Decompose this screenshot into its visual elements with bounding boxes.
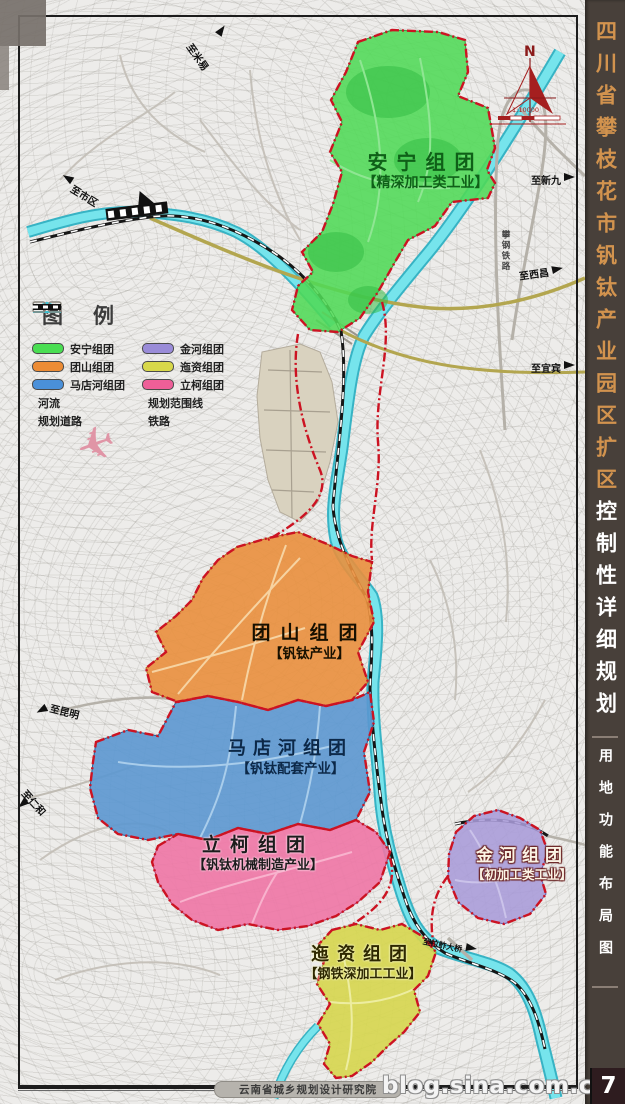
zone-label-jinhe: 金河组团 【初加工类工业】	[452, 846, 592, 883]
strip-divider	[592, 986, 618, 988]
zone-label-like: 立柯组团 【钒钛机械制造产业】	[168, 834, 348, 874]
scale-text: 1:10000	[512, 106, 539, 114]
yizi-swatch-icon	[142, 361, 174, 372]
zone-name: 马店河组团	[198, 738, 383, 761]
zone-name: 安宁组团	[338, 150, 513, 175]
arrow-lazha-bridge-icon	[465, 943, 477, 953]
anning-swatch-icon	[32, 343, 64, 354]
corner-square	[0, 0, 46, 46]
label-to-yibin: 至宜宾	[531, 360, 561, 375]
like-swatch-icon	[142, 379, 174, 390]
legend: 图例 安宁组团 团山组团 马店河组团	[32, 300, 250, 427]
watermark-blog-url: blog.sina.com.cn/xiagrui	[382, 1073, 625, 1099]
corner-tab	[0, 46, 9, 90]
jinhe-swatch-icon	[142, 343, 174, 354]
scale-bar-icon	[492, 116, 566, 124]
zone-name: 立柯组团	[168, 834, 348, 858]
institute-name: 云南省城乡规划设计研究院	[239, 1082, 377, 1097]
legend-item-anning: 安宁组团	[32, 342, 134, 355]
madianhe-swatch-icon	[32, 379, 64, 390]
legend-item-like: 立柯组团	[142, 378, 224, 391]
arrow-to-yibin-icon	[564, 361, 575, 369]
label-to-xinjiu: 至新九	[531, 172, 561, 187]
zone-name: 团山组团	[232, 622, 387, 646]
legend-item-madianhe: 马店河组团	[32, 378, 134, 391]
legend-item-yizi: 迤资组团	[142, 360, 224, 373]
strip-divider	[592, 736, 618, 738]
legend-item-river: 河流	[32, 396, 134, 409]
legend-item-tuanshan: 团山组团	[32, 360, 134, 373]
legend-item-railway: 铁路	[142, 414, 224, 427]
zone-industry: 【钒钛机械制造产业】	[168, 858, 348, 874]
map-canvas: N 1:10000 ✈ 安宁组团 【精深加工类工业】	[0, 0, 585, 1104]
zone-industry: 【钒钛产业】	[232, 646, 387, 663]
zone-label-anning: 安宁组团 【精深加工类工业】	[338, 150, 513, 193]
legend-item-road: 规划道路	[32, 414, 134, 427]
zone-name: 迤资组团	[283, 944, 443, 967]
map-title-region: 四川省攀枝花市钒钛产业园区扩区	[595, 20, 616, 500]
zone-industry: 【钒钛配套产业】	[198, 761, 383, 778]
title-strip: 四川省攀枝花市钒钛产业园区扩区 控制性详细规划 用地功能布局图	[585, 0, 625, 1104]
arrow-to-xinjiu-icon	[564, 173, 575, 181]
institute-badge: 云南省城乡规划设计研究院	[214, 1081, 402, 1098]
label-railway-name: 攀钢铁路	[499, 230, 511, 272]
legend-title: 图例	[42, 300, 250, 330]
planning-map-screenshot: N 1:10000 ✈ 安宁组团 【精深加工类工业】	[0, 0, 625, 1104]
builtup-area	[257, 344, 338, 522]
zone-label-madianhe: 马店河组团 【钒钛配套产业】	[198, 738, 383, 777]
map-subtitle: 用地功能布局图	[598, 748, 612, 972]
zone-label-tuanshan: 团山组团 【钒钛产业】	[232, 622, 387, 663]
map-title-plan: 控制性详细规划	[595, 500, 616, 724]
compass-north-label: N	[524, 44, 536, 60]
zone-industry: 【精深加工类工业】	[338, 175, 513, 193]
watermark-logo: 7	[590, 1068, 625, 1104]
tuanshan-swatch-icon	[32, 361, 64, 372]
zone-name: 金河组团	[452, 846, 592, 867]
legend-item-jinhe: 金河组团	[142, 342, 224, 355]
zone-label-yizi: 迤资组团 【钢铁深加工工业】	[283, 944, 443, 983]
legend-item-boundary: 规划范围线	[142, 396, 224, 409]
zone-industry: 【初加工类工业】	[452, 867, 592, 883]
zone-industry: 【钢铁深加工工业】	[283, 967, 443, 983]
